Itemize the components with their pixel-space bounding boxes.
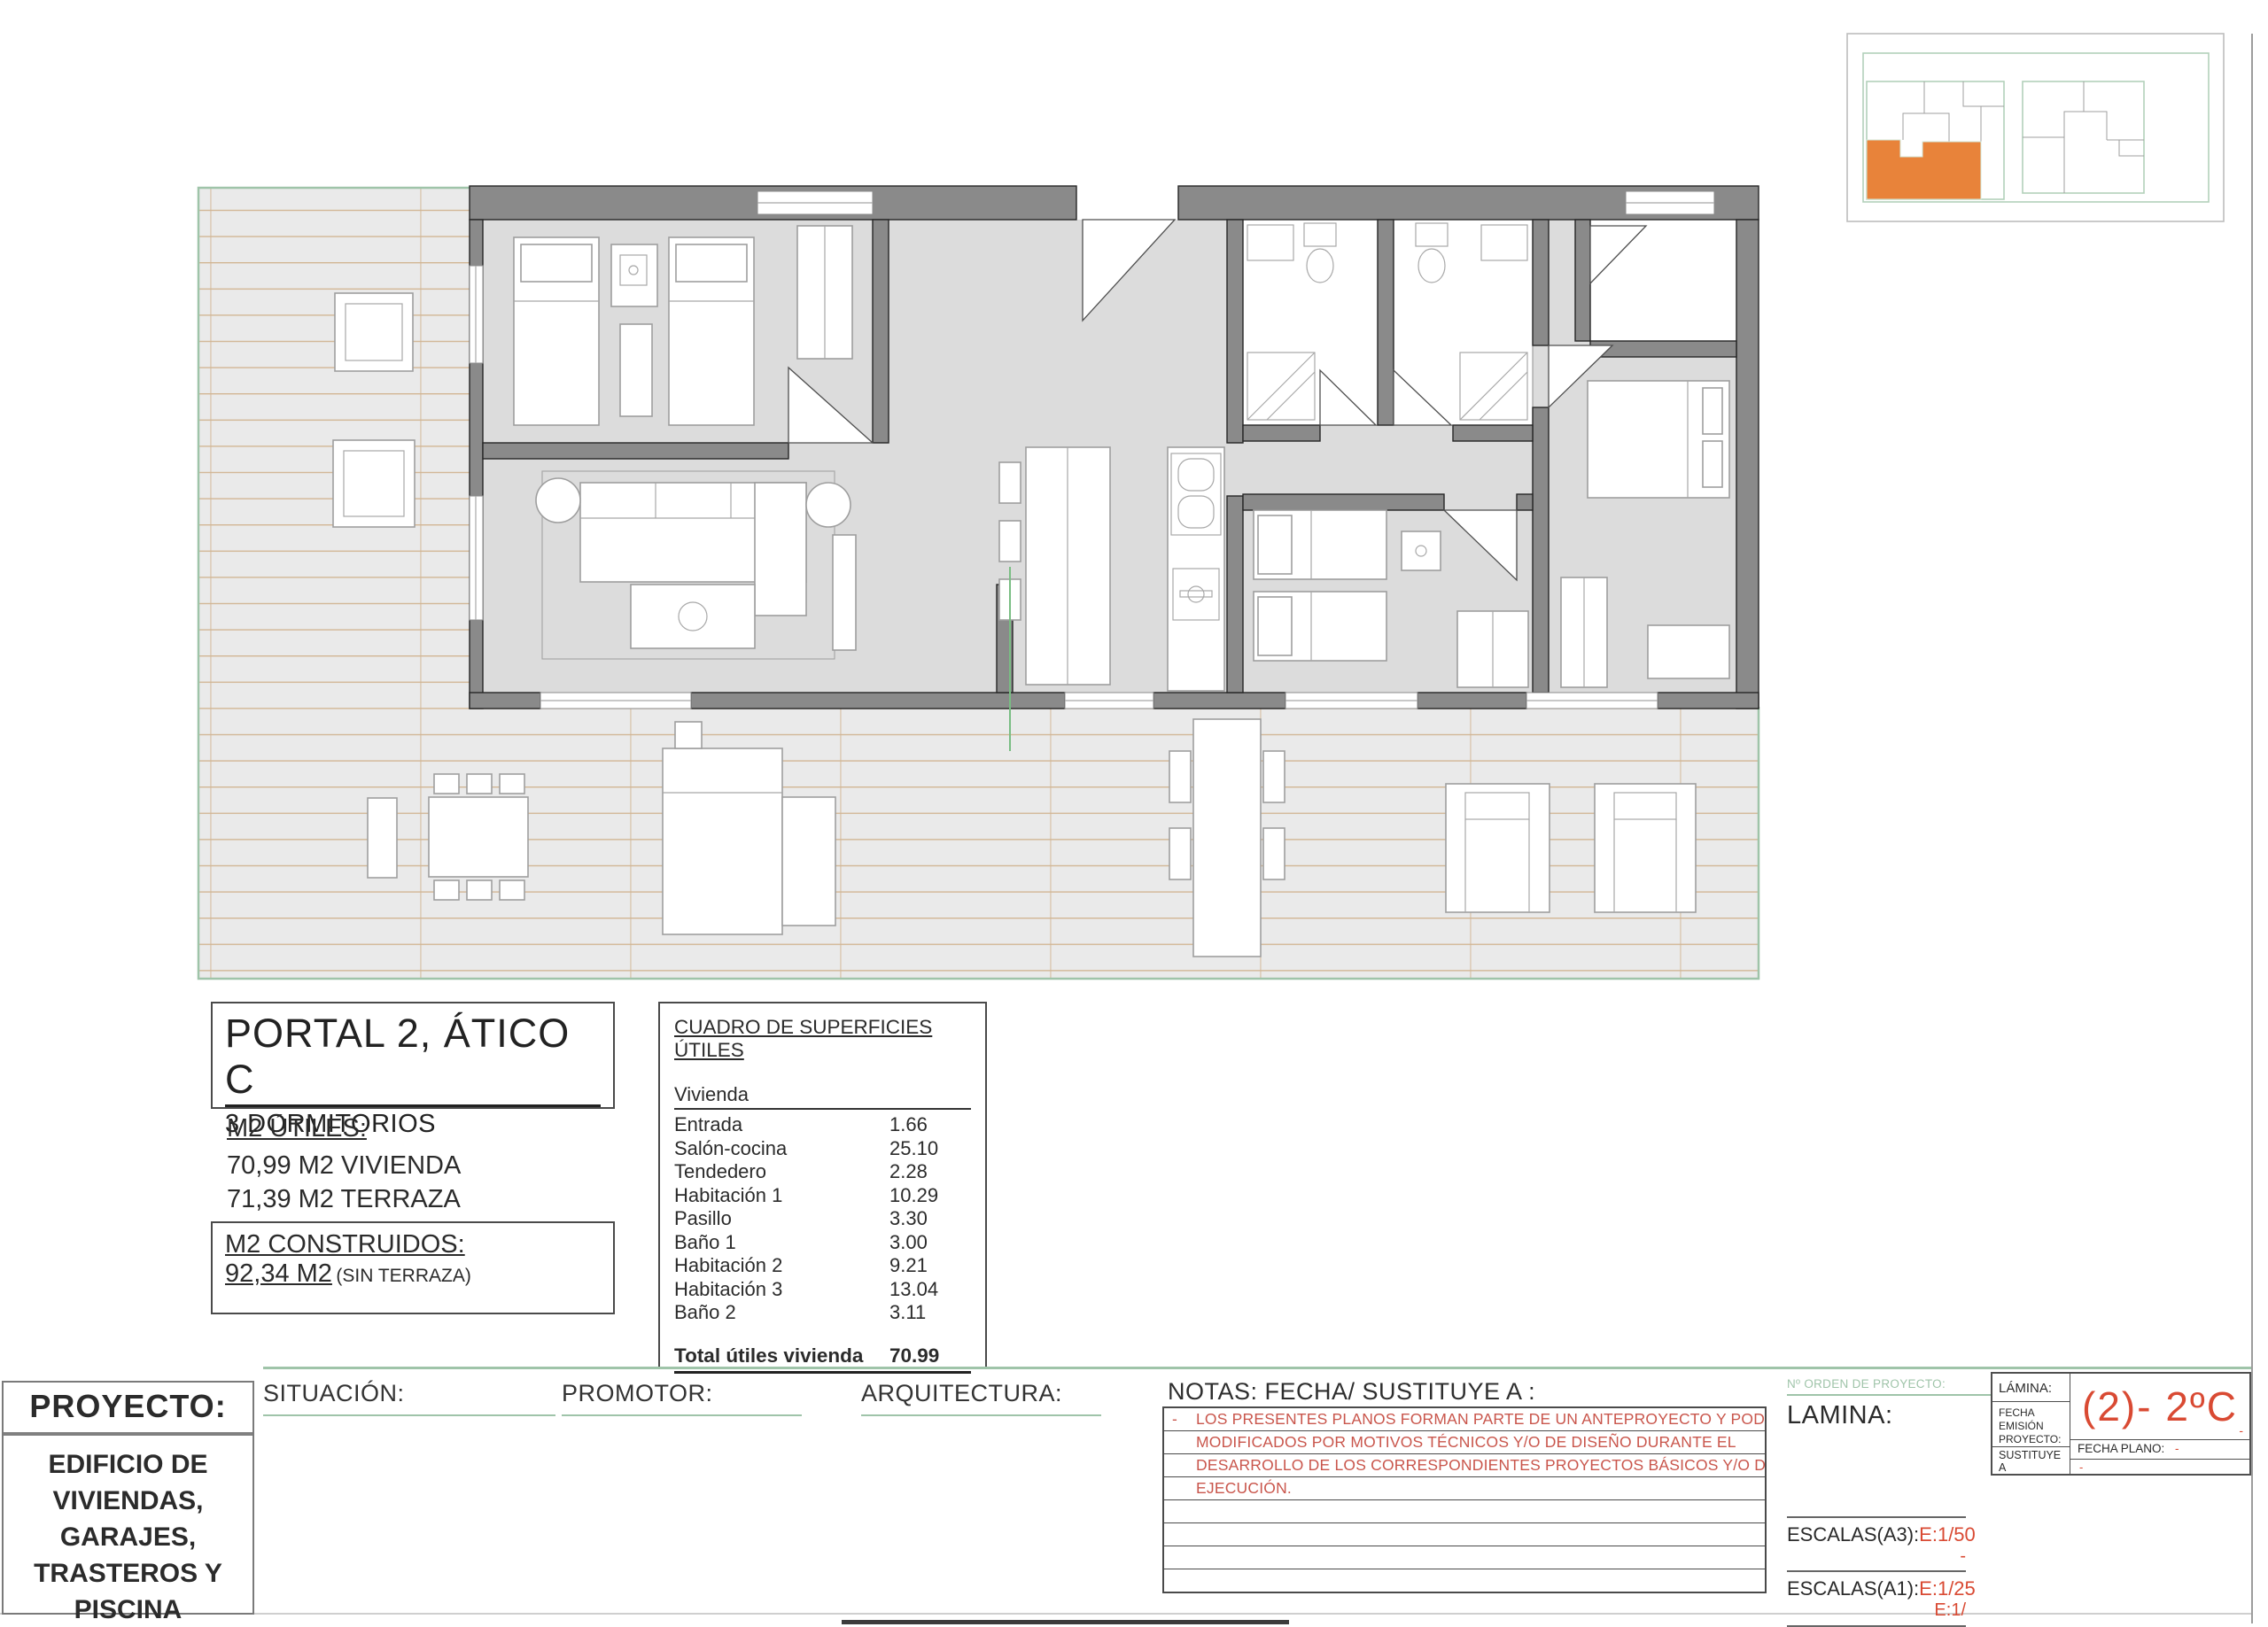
- nota-row-empty: [1164, 1500, 1765, 1523]
- notas-label: NOTAS: FECHA/ SUSTITUYE A :: [1168, 1378, 1535, 1406]
- m2-utiles-line2: 71,39 M2 TERRAZA: [227, 1182, 461, 1216]
- table-row: Tendedero2.28: [674, 1160, 971, 1184]
- unit-title-box: PORTAL 2, ÁTICO C 3 DORMITORIOS: [211, 1002, 615, 1109]
- lamina-label: LAMINA:: [1787, 1401, 1893, 1430]
- bath1-floor: [1243, 220, 1378, 425]
- sheet-id-values: (2)- 2ºC - FECHA PLANO: - -: [2070, 1374, 2249, 1474]
- proyecto-label: PROYECTO:: [4, 1383, 252, 1425]
- titleblock-top-line: [263, 1367, 2253, 1369]
- promotor-field: PROMOTOR:: [562, 1380, 802, 1416]
- m2-construidos-box: M2 CONSTRUIDOS: 92,34 M2 (SIN TERRAZA): [211, 1221, 615, 1314]
- table-row: Baño 13.00: [674, 1231, 971, 1255]
- table-row: Habitación 110.29: [674, 1184, 971, 1208]
- proyecto-box: PROYECTO: EDIFICIO DE VIVIENDAS, GARAJES…: [2, 1381, 254, 1615]
- m2-utiles-line1: 70,99 M2 VIVIENDA: [227, 1149, 461, 1182]
- notas-box: -LOS PRESENTES PLANOS FORMAN PARTE DE UN…: [1162, 1406, 1767, 1593]
- surfaces-table: CUADRO DE SUPERFICIES ÚTILES Vivienda En…: [658, 1002, 987, 1369]
- table-row: Habitación 29.21: [674, 1254, 971, 1278]
- m2-construidos-value: 92,34 M2: [225, 1259, 332, 1288]
- nota-row-empty: [1164, 1523, 1765, 1546]
- m2-utiles-block: M2 ÚTILES: 70,99 M2 VIVIENDA 71,39 M2 TE…: [227, 1114, 461, 1216]
- sheet-id-box: LÁMINA: FECHA EMISIÓN PROYECTO: SUSTITUY…: [1991, 1372, 2251, 1476]
- m2-construidos-note: (SIN TERRAZA): [336, 1266, 470, 1286]
- m2-utiles-label: M2 ÚTILES:: [227, 1114, 367, 1143]
- sheet-code-dash: -: [2239, 1423, 2245, 1437]
- table-row: Baño 23.11: [674, 1301, 971, 1325]
- table-row: Entrada1.66: [674, 1113, 971, 1137]
- sheet-code: (2)- 2ºC: [2082, 1383, 2238, 1430]
- nota-row-empty: [1164, 1569, 1765, 1592]
- surfaces-title: CUADRO DE SUPERFICIES ÚTILES: [674, 1016, 971, 1062]
- sheet-fecha-emision-label: FECHA EMISIÓN PROYECTO:: [1992, 1402, 2070, 1447]
- table-row: Pasillo3.30: [674, 1207, 971, 1231]
- escalas-block: ESCALAS(A3): E:1/50 - ESCALAS(A1): E:1/2…: [1787, 1516, 1966, 1627]
- escalas-a1-row: ESCALAS(A1): E:1/25: [1787, 1572, 1966, 1600]
- proyecto-title: EDIFICIO DE VIVIENDAS, GARAJES, TRASTERO…: [4, 1436, 252, 1627]
- sheet-sustituye-label: SUSTITUYE A: [1992, 1447, 2070, 1474]
- table-row: Habitación 313.04: [674, 1278, 971, 1302]
- escalas-a3-row: ESCALAS(A3): E:1/50: [1787, 1518, 1966, 1546]
- sheet-code-cell: (2)- 2ºC -: [2070, 1374, 2249, 1440]
- sheet-lamina-label: LÁMINA:: [1992, 1374, 2070, 1402]
- m2-construidos-label: M2 CONSTRUIDOS:: [225, 1230, 465, 1259]
- fecha-plano-cell: FECHA PLANO: -: [2070, 1440, 2249, 1460]
- sheet-id-labels: LÁMINA: FECHA EMISIÓN PROYECTO: SUSTITUY…: [1992, 1374, 2070, 1474]
- escalas-a3-sub: -: [1787, 1546, 1966, 1567]
- page-edge-segment: [842, 1620, 1289, 1624]
- nota-row: EJECUCIÓN.: [1164, 1477, 1765, 1500]
- nota-row-empty: [1164, 1546, 1765, 1569]
- sustituye-value-cell: -: [2070, 1460, 2249, 1474]
- highlighted-unit: [1867, 140, 1981, 199]
- escalas-a1-sub: E:1/: [1787, 1600, 1966, 1621]
- unit-title: PORTAL 2, ÁTICO C: [225, 1011, 601, 1107]
- nota-row: -LOS PRESENTES PLANOS FORMAN PARTE DE UN…: [1164, 1408, 1765, 1431]
- nota-row: DESARROLLO DE LOS CORRESPONDIENTES PROYE…: [1164, 1454, 1765, 1477]
- table-row: Salón-cocina25.10: [674, 1137, 971, 1161]
- arquitectura-field: ARQUITECTURA:: [861, 1380, 1101, 1416]
- plan-sheet: PORTAL 2, ÁTICO C 3 DORMITORIOS M2 ÚTILE…: [0, 0, 2268, 1627]
- locator-map: [1847, 34, 2224, 221]
- surfaces-group: Vivienda: [674, 1083, 971, 1110]
- orden-label: Nº ORDEN DE PROYECTO:: [1787, 1377, 1946, 1391]
- sheet-right-border: [2251, 34, 2253, 1623]
- situacion-field: SITUACIÓN:: [263, 1380, 555, 1416]
- nota-row: MODIFICADOS POR MOTIVOS TÉCNICOS Y/O DE …: [1164, 1431, 1765, 1454]
